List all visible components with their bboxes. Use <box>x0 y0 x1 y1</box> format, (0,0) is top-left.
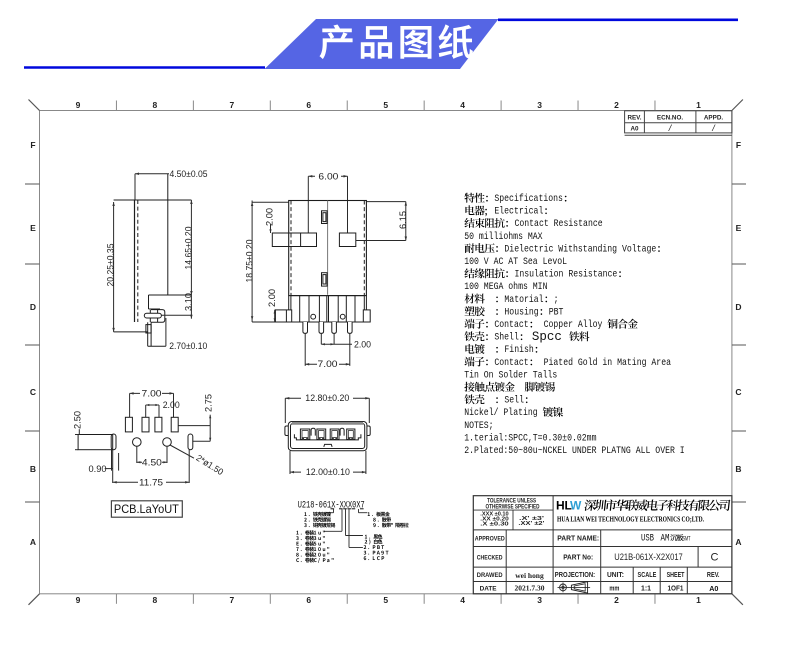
svg-text:CHECKED: CHECKED <box>477 555 503 562</box>
svg-text:2.00: 2.00 <box>354 339 371 349</box>
svg-text:9: 9 <box>76 100 81 110</box>
svg-text:3: 3 <box>537 100 542 110</box>
svg-text:6.15: 6.15 <box>398 211 408 229</box>
svg-text:PART NAME:: PART NAME: <box>557 536 599 543</box>
svg-text:APPROVED: APPROVED <box>475 536 505 543</box>
svg-text:C: C <box>30 387 36 397</box>
svg-text:E: E <box>736 223 742 233</box>
svg-text:Matorial: Matorial <box>504 294 543 306</box>
svg-text:12.80±0.20: 12.80±0.20 <box>305 393 349 403</box>
svg-text:Nickel/ Plating: Nickel/ Plating <box>464 407 538 419</box>
svg-text:100 V AC AT Sea LevoL: 100 V AC AT Sea LevoL <box>464 256 567 268</box>
svg-text:Contact: Contact <box>494 357 528 369</box>
svg-text:14.65±0.20: 14.65±0.20 <box>184 227 194 270</box>
svg-text:Housing: Housing <box>504 306 538 318</box>
svg-text:USB: USB <box>641 534 654 545</box>
svg-text:Sell: Sell <box>504 395 524 407</box>
svg-text:1: 1 <box>696 595 701 605</box>
svg-text:0.90: 0.90 <box>89 464 107 474</box>
svg-text:DRAWED: DRAWED <box>477 572 503 579</box>
svg-text:F: F <box>30 140 35 150</box>
svg-text:2021.7.30: 2021.7.30 <box>515 584 546 592</box>
svg-text:6: 6 <box>306 595 311 605</box>
svg-text:4: 4 <box>460 595 465 605</box>
svg-text:6: 6 <box>306 100 311 110</box>
svg-text:U21B-061X-X2X017: U21B-061X-X2X017 <box>614 552 683 562</box>
svg-text:A0: A0 <box>709 584 718 593</box>
svg-text:2.00: 2.00 <box>163 400 180 410</box>
svg-text:W: W <box>570 499 582 513</box>
svg-text:1.terial:SPCC,T=0.30±0.02mm: 1.terial:SPCC,T=0.30±0.02mm <box>464 432 596 444</box>
svg-text:PART No:: PART No: <box>563 555 593 562</box>
svg-text:12.00±0.10: 12.00±0.10 <box>306 467 350 477</box>
svg-text:1OF1: 1OF1 <box>668 586 684 593</box>
svg-text:SHEET: SHEET <box>667 572 685 579</box>
svg-text:A: A <box>30 537 36 547</box>
svg-text:1:1: 1:1 <box>641 586 651 593</box>
svg-text:Piated Gold in Mating Area: Piated Gold in Mating Area <box>544 357 671 369</box>
svg-text:2: 2 <box>614 100 619 110</box>
svg-text:6.00: 6.00 <box>318 171 338 181</box>
svg-text:8: 8 <box>153 595 158 605</box>
svg-text:REV.: REV. <box>627 115 641 122</box>
svg-text:NOTES;: NOTES; <box>464 420 493 432</box>
svg-text:ECN.NO.: ECN.NO. <box>657 115 683 122</box>
svg-text:HUA LIAN WEI TECHNOLOGY ELECTR: HUA LIAN WEI TECHNOLOGY ELECTRONICS CO;L… <box>557 517 704 524</box>
svg-text:D: D <box>735 302 741 312</box>
svg-text:2: 2 <box>614 595 619 605</box>
svg-text:F: F <box>736 140 741 150</box>
svg-text:.X ±0.30: .X ±0.30 <box>480 521 508 527</box>
svg-text:2.70±0.10: 2.70±0.10 <box>169 341 207 351</box>
svg-text:Specifications: Specifications <box>494 193 563 205</box>
svg-text:3.10: 3.10 <box>184 293 194 311</box>
svg-text:H: H <box>556 499 565 513</box>
svg-text:7.00: 7.00 <box>142 388 162 398</box>
svg-text:Dielectric Withstanding Voltag: Dielectric Withstanding Voltage <box>504 243 656 255</box>
svg-text:Contact Resistance: Contact Resistance <box>514 218 602 230</box>
svg-text:8: 8 <box>153 100 158 110</box>
svg-text:2.00: 2.00 <box>265 208 275 226</box>
svg-text:18.75±0.20: 18.75±0.20 <box>244 240 254 283</box>
svg-text:5: 5 <box>383 100 388 110</box>
svg-text:4.50±0.05: 4.50±0.05 <box>170 169 208 179</box>
svg-text:SCALE: SCALE <box>638 572 657 579</box>
svg-text:2.00: 2.00 <box>267 289 277 307</box>
svg-text:2.50: 2.50 <box>73 411 83 429</box>
svg-text:Insulation Resistance: Insulation Resistance <box>514 269 617 281</box>
svg-text:mm: mm <box>609 586 619 593</box>
svg-text:Shell: Shell <box>494 332 518 344</box>
svg-text:11.75: 11.75 <box>139 477 163 487</box>
svg-text:7.00: 7.00 <box>318 359 338 369</box>
svg-text:Tin On Solder Talls: Tin On Solder Talls <box>464 369 557 381</box>
svg-text:C: C <box>711 552 719 564</box>
svg-text:E: E <box>30 223 36 233</box>
svg-text:Finish: Finish <box>504 344 533 356</box>
svg-text:20.25±0.35: 20.25±0.35 <box>106 244 116 287</box>
svg-text:A: A <box>735 537 741 547</box>
svg-text:AM: AM <box>661 534 670 545</box>
svg-text:UNIT:: UNIT: <box>607 572 624 579</box>
svg-text:Contact: Contact <box>494 319 528 331</box>
svg-text:SMT: SMT <box>683 536 691 542</box>
svg-text:A0: A0 <box>630 126 639 133</box>
svg-text:2.75: 2.75 <box>203 394 213 412</box>
svg-text:D: D <box>30 302 36 312</box>
svg-text:B: B <box>30 464 36 474</box>
svg-text:PROJECTION:: PROJECTION: <box>555 572 595 579</box>
svg-text:1: 1 <box>696 100 701 110</box>
svg-text:50 milliohms MAX: 50 milliohms MAX <box>464 231 543 243</box>
svg-text:7: 7 <box>229 100 234 110</box>
svg-text:;: ; <box>554 294 559 306</box>
svg-text:DATE: DATE <box>480 586 497 593</box>
svg-text:PBT: PBT <box>549 306 564 318</box>
svg-text:100 MEGA ohms MIN: 100 MEGA ohms MIN <box>464 281 547 293</box>
svg-text:C: C <box>735 387 741 397</box>
svg-text:APPD.: APPD. <box>704 115 723 122</box>
svg-text:.XX' ±2': .XX' ±2' <box>518 521 545 527</box>
svg-text:4.50: 4.50 <box>142 457 162 467</box>
svg-text:2.Plated:50~80u~NCKEL UNDER PL: 2.Plated:50~80u~NCKEL UNDER PLATNG ALL O… <box>464 445 685 457</box>
svg-text:3: 3 <box>537 595 542 605</box>
svg-text:PCB.LaYoUT: PCB.LaYoUT <box>114 502 180 516</box>
svg-text:Electrical: Electrical <box>494 206 543 218</box>
svg-text:U218-061X-XXX0X7: U218-061X-XXX0X7 <box>298 501 365 512</box>
svg-text:9: 9 <box>76 595 81 605</box>
svg-text:5: 5 <box>383 595 388 605</box>
svg-text:wei hong: wei hong <box>515 572 544 580</box>
svg-text:REV.: REV. <box>707 572 720 579</box>
svg-text:Spcc: Spcc <box>532 329 562 344</box>
svg-text:4: 4 <box>460 100 465 110</box>
svg-text:B: B <box>735 464 741 474</box>
svg-text:OTHERWISE SPECIFIED: OTHERWISE SPECIFIED <box>486 504 541 510</box>
svg-text:7: 7 <box>229 595 234 605</box>
